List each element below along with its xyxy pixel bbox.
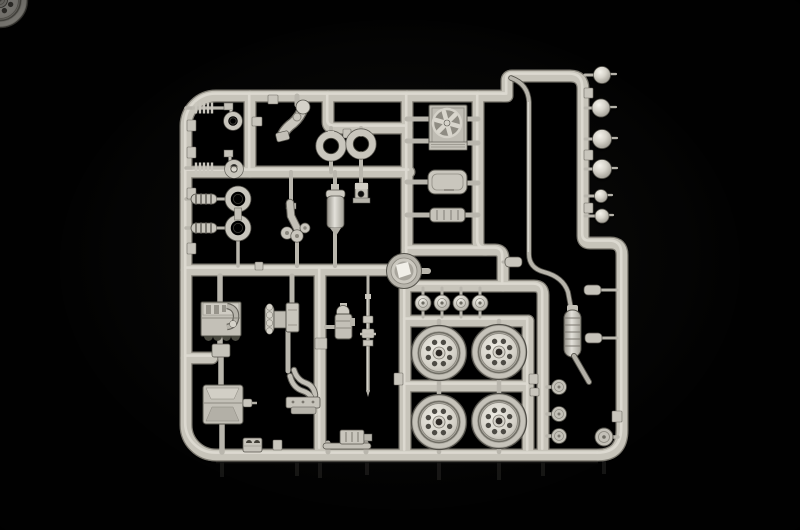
sprue-photo — [0, 0, 800, 530]
sprue-photo-svg — [0, 0, 800, 530]
vignette — [0, 0, 800, 530]
